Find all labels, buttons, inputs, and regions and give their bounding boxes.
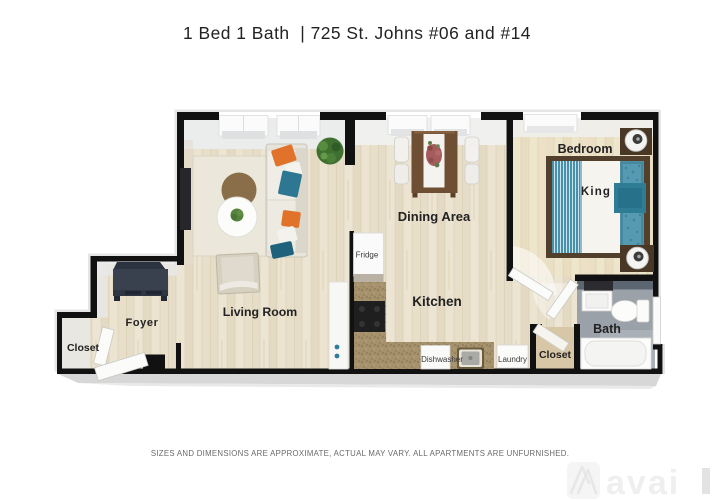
svg-text:Closet: Closet xyxy=(539,349,572,361)
svg-text:Laundry: Laundry xyxy=(498,355,527,364)
svg-text:1 Bed 1 Bath | 725 St. Johns: 1 Bed 1 Bath | 725 St. Johns #06 and #14 xyxy=(183,23,531,43)
svg-text:Bedroom: Bedroom xyxy=(558,142,613,156)
svg-text:Fridge: Fridge xyxy=(356,251,379,260)
svg-text:Dining Area: Dining Area xyxy=(398,209,471,224)
svg-text:Dishwasher: Dishwasher xyxy=(421,355,463,364)
svg-text:Foyer: Foyer xyxy=(126,317,159,329)
svg-text:Living Room: Living Room xyxy=(223,305,298,319)
svg-text:avai: avai xyxy=(606,464,680,500)
svg-text:Kitchen: Kitchen xyxy=(412,294,462,309)
svg-text:Closet: Closet xyxy=(67,342,100,354)
svg-text:Bath: Bath xyxy=(593,322,621,336)
svg-text:King: King xyxy=(581,186,611,198)
svg-text:SIZES AND DIMENSIONS ARE APPRO: SIZES AND DIMENSIONS ARE APPROXIMATE, AC… xyxy=(151,449,569,458)
